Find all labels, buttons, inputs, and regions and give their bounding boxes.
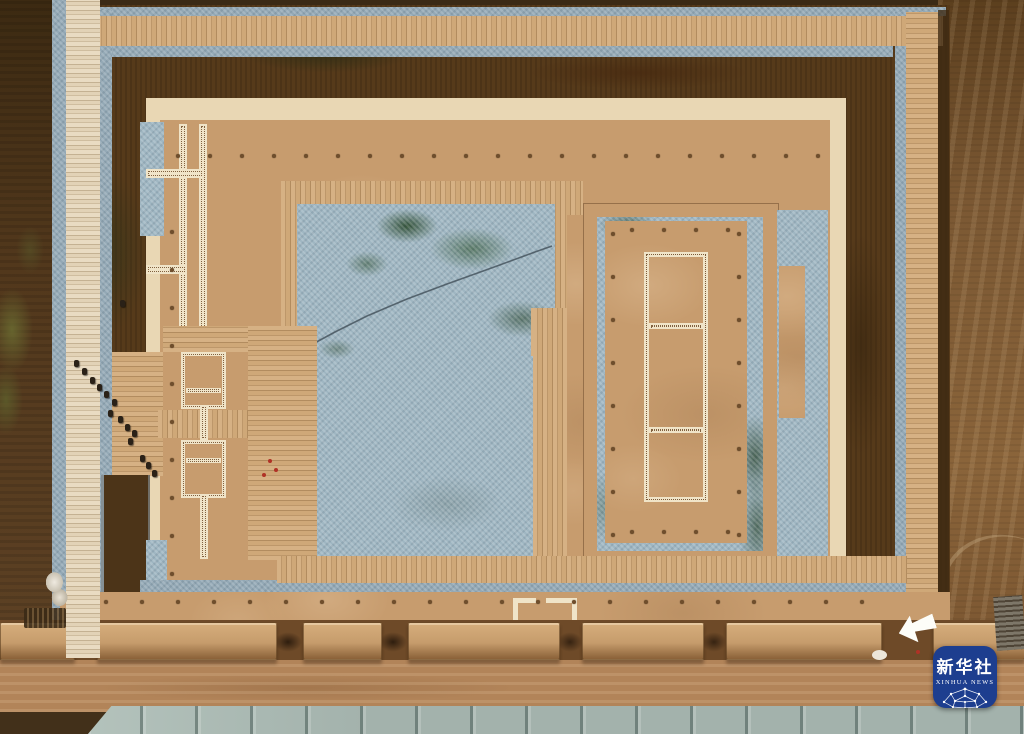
post-hole (176, 154, 180, 158)
person-dot (90, 377, 95, 384)
red-marker (916, 650, 920, 654)
boardwalk-south (277, 556, 907, 583)
gate-square-divider (186, 388, 221, 393)
post-hole (284, 600, 288, 604)
post-hole (737, 404, 741, 408)
ground-crack (297, 204, 555, 558)
post-hole (716, 600, 720, 604)
post-hole (176, 600, 180, 604)
post-hole (170, 306, 174, 310)
post-hole (611, 232, 615, 236)
post-hole (140, 600, 144, 604)
white-sack-road (872, 650, 887, 660)
post-hole (784, 154, 788, 158)
post-hole (368, 154, 372, 158)
person-dot (82, 368, 87, 375)
post-hole (737, 447, 741, 451)
post-hole (726, 228, 730, 232)
post-hole (170, 268, 174, 272)
gate-foundation-square (181, 352, 226, 409)
xinhua-en-text: XINHUA NEWS (933, 679, 997, 686)
post-hole (336, 154, 340, 158)
ruined-wall-segment (408, 622, 560, 660)
post-hole (304, 154, 308, 158)
person-dot (120, 300, 125, 307)
gravel-line (100, 46, 893, 57)
post-hole (860, 600, 864, 604)
post-hole (680, 600, 684, 604)
post-hole (170, 496, 174, 500)
post-hole (611, 447, 615, 451)
boardwalk-west (66, 0, 100, 658)
post-hole (816, 154, 820, 158)
boardwalk-strip-east (533, 308, 569, 585)
field-edge-line (938, 10, 949, 650)
post-hole (624, 154, 628, 158)
post-hole (572, 600, 576, 604)
post-hole (656, 154, 660, 158)
gate-foundation-square (181, 440, 226, 498)
person-dot (112, 399, 117, 406)
post-hole (464, 600, 468, 604)
gravel-line (52, 0, 66, 658)
post-hole (356, 600, 360, 604)
post-hole (630, 530, 634, 534)
person-dot (104, 391, 109, 398)
person-dot (125, 424, 130, 431)
post-hole (170, 344, 174, 348)
post-hole (611, 533, 615, 537)
person-dot (152, 470, 157, 477)
post-hole (496, 154, 500, 158)
red-marker (274, 468, 278, 472)
aerial-photo-archaeological-site: 新华社 XINHUA NEWS (0, 0, 1024, 734)
timber-stack (993, 595, 1024, 651)
ladder-divider (649, 427, 703, 433)
post-hole (752, 600, 756, 604)
post-hole (694, 228, 698, 232)
person-dot (108, 410, 113, 417)
xinhua-network-globe-icon (941, 687, 989, 708)
wall-footing-strip (179, 124, 187, 340)
post-hole (720, 154, 724, 158)
person-dot (146, 462, 151, 469)
post-hole (737, 361, 741, 365)
post-hole (400, 154, 404, 158)
post-hole (611, 318, 615, 322)
post-hole (737, 275, 741, 279)
post-hole (170, 230, 174, 234)
post-hole (608, 600, 612, 604)
post-hole (170, 534, 174, 538)
post-hole (611, 361, 615, 365)
ruined-wall-segment (303, 622, 382, 660)
post-hole (392, 600, 396, 604)
post-hole (170, 420, 174, 424)
ruined-wall-segment (726, 622, 882, 660)
post-hole (611, 275, 615, 279)
post-hole (320, 600, 324, 604)
red-marker (262, 473, 266, 477)
east-foundation-ladder (644, 252, 708, 502)
xinhua-cn-text: 新华社 (933, 653, 997, 678)
post-hole (170, 572, 174, 576)
post-hole (630, 228, 634, 232)
post-hole (464, 154, 468, 158)
post-hole (208, 154, 212, 158)
post-hole (726, 530, 730, 534)
post-hole (662, 228, 666, 232)
post-hole (752, 154, 756, 158)
dirt-road (0, 652, 1024, 712)
person-dot (128, 438, 133, 445)
wall-footing-strip (146, 265, 187, 274)
post-hole (592, 154, 596, 158)
post-hole (737, 533, 741, 537)
east-step-strip (779, 266, 805, 418)
post-hole (737, 490, 741, 494)
post-hole (170, 382, 174, 386)
person-dot (97, 384, 102, 391)
post-hole (240, 154, 244, 158)
person-dot (140, 455, 145, 462)
post-hole (248, 600, 252, 604)
post-hole (788, 600, 792, 604)
red-marker (268, 459, 272, 463)
timber-debris (24, 608, 66, 628)
white-sacks (44, 572, 70, 606)
stone-pavement (88, 706, 1024, 734)
wall-footing-strip (200, 405, 208, 440)
post-hole (824, 600, 828, 604)
post-hole (536, 600, 540, 604)
post-hole (272, 154, 276, 158)
post-hole (644, 600, 648, 604)
gravel-line (93, 7, 946, 16)
gravel-pocket-nw (140, 122, 164, 236)
post-hole (611, 404, 615, 408)
person-dot (118, 416, 123, 423)
post-hole (528, 154, 532, 158)
gate-boardwalk-column (248, 326, 317, 560)
post-hole (170, 458, 174, 462)
xinhua-watermark-badge: 新华社 XINHUA NEWS (933, 646, 997, 708)
post-hole (500, 600, 504, 604)
post-hole (737, 232, 741, 236)
wall-footing-strip (200, 494, 208, 559)
ruined-wall-segment (582, 622, 704, 660)
post-hole (560, 154, 564, 158)
post-hole (104, 600, 108, 604)
ladder-divider (649, 323, 703, 329)
gate-square-divider (186, 458, 221, 463)
post-hole (662, 530, 666, 534)
boardwalk-east (906, 12, 938, 648)
post-hole (611, 490, 615, 494)
person-dot (132, 430, 137, 437)
ruined-wall-segment (97, 622, 277, 660)
post-hole (432, 154, 436, 158)
post-hole (688, 154, 692, 158)
gate-walkway-upper (163, 326, 248, 352)
person-dot (74, 360, 79, 367)
post-hole (428, 600, 432, 604)
wall-footing-strip (146, 169, 204, 178)
post-hole (212, 600, 216, 604)
post-hole (737, 318, 741, 322)
boardwalk-north (97, 16, 943, 46)
post-hole (694, 530, 698, 534)
